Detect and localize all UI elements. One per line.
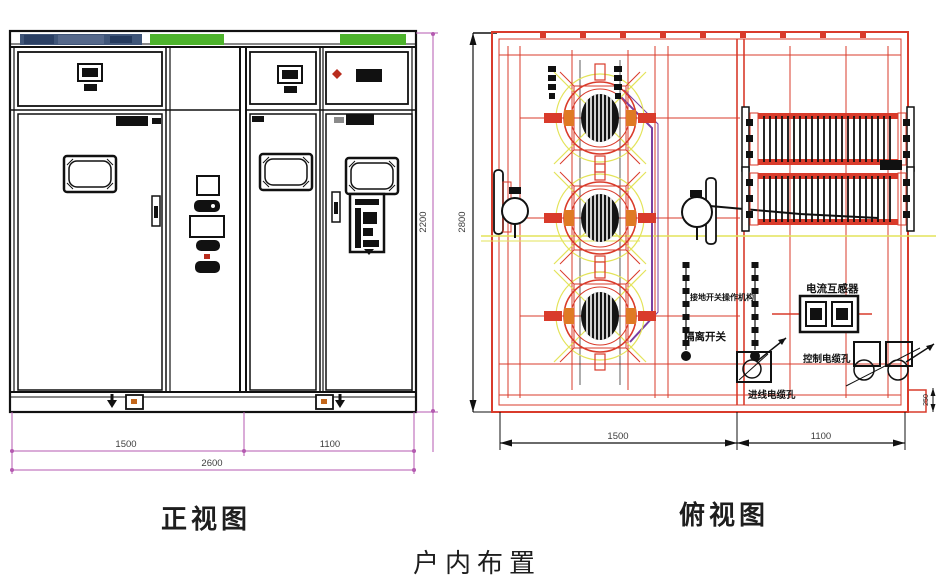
coil-bushing-1 [544, 64, 656, 172]
vertical-tag [614, 66, 622, 99]
vent-window [260, 154, 312, 190]
coil-bushing-3 [544, 262, 656, 370]
door-right-1 [250, 114, 316, 390]
label-plate [252, 116, 264, 122]
dim-front-left-width: 1500 [115, 439, 136, 450]
vertical-tag [548, 66, 556, 99]
front-view: 2200 1500 1100 2600 [10, 31, 438, 474]
dim-top-right-width: 1100 [811, 431, 831, 442]
frame-bolt-marks [540, 33, 866, 38]
label-plate [346, 114, 374, 125]
current-transformer-box [772, 296, 872, 332]
page-title: 户内布置 [413, 548, 541, 578]
button-cluster [194, 200, 220, 212]
dim-front-right-width: 1100 [320, 439, 340, 450]
coil-bushing-2 [544, 164, 656, 272]
button-cluster [196, 240, 220, 251]
door-left [18, 114, 162, 390]
green-trim-right [340, 34, 406, 45]
front-view-caption: 正视图 [161, 504, 251, 534]
label-plate [356, 69, 382, 82]
label-disconnector: 隔离开关 [684, 330, 726, 343]
door-right-2 [326, 114, 412, 390]
indicator-lamp-icon [204, 254, 210, 259]
top-view-width-dimensions [500, 412, 905, 450]
dim-top-left-width: 1500 [607, 431, 628, 442]
top-view-caption: 俯视图 [679, 500, 769, 530]
meter-window [190, 216, 224, 237]
green-trim-left [150, 34, 224, 45]
door-handle [332, 192, 340, 222]
operating-device-left [494, 170, 528, 238]
meter-window [197, 176, 219, 195]
label-control-cable-hole: 控制电缆孔 [803, 353, 851, 365]
label-current-transformer: 电流互感器 [806, 282, 859, 295]
button-cluster [195, 261, 220, 273]
drive-chain-1 [681, 262, 691, 361]
door-handle [152, 196, 160, 226]
label-incoming-cable-hole: 进线电缆孔 [748, 389, 796, 401]
dim-step: 250 [923, 394, 930, 406]
label-plate [334, 117, 344, 123]
label-plate [152, 118, 161, 124]
breaker-diagram-plate [350, 194, 384, 255]
dim-front-total-width: 2600 [201, 458, 222, 469]
dim-room-depth: 2800 [457, 211, 468, 232]
bank-terminal [880, 160, 902, 170]
dim-cabinet-height: 2200 [418, 211, 429, 232]
drawing-page: 2200 1500 1100 2600 2800 [0, 0, 944, 582]
drive-chain-2 [750, 262, 760, 361]
vent-window [346, 158, 398, 194]
vent-window [64, 156, 116, 192]
label-plate [116, 116, 148, 126]
label-earth-switch-mechanism: 接地开关操作机构 [690, 292, 754, 302]
nameplate [20, 34, 142, 45]
cad-drawing: 2200 1500 1100 2600 2800 [0, 0, 944, 582]
top-view: 2800 [457, 32, 936, 450]
step-dimension [931, 388, 936, 412]
